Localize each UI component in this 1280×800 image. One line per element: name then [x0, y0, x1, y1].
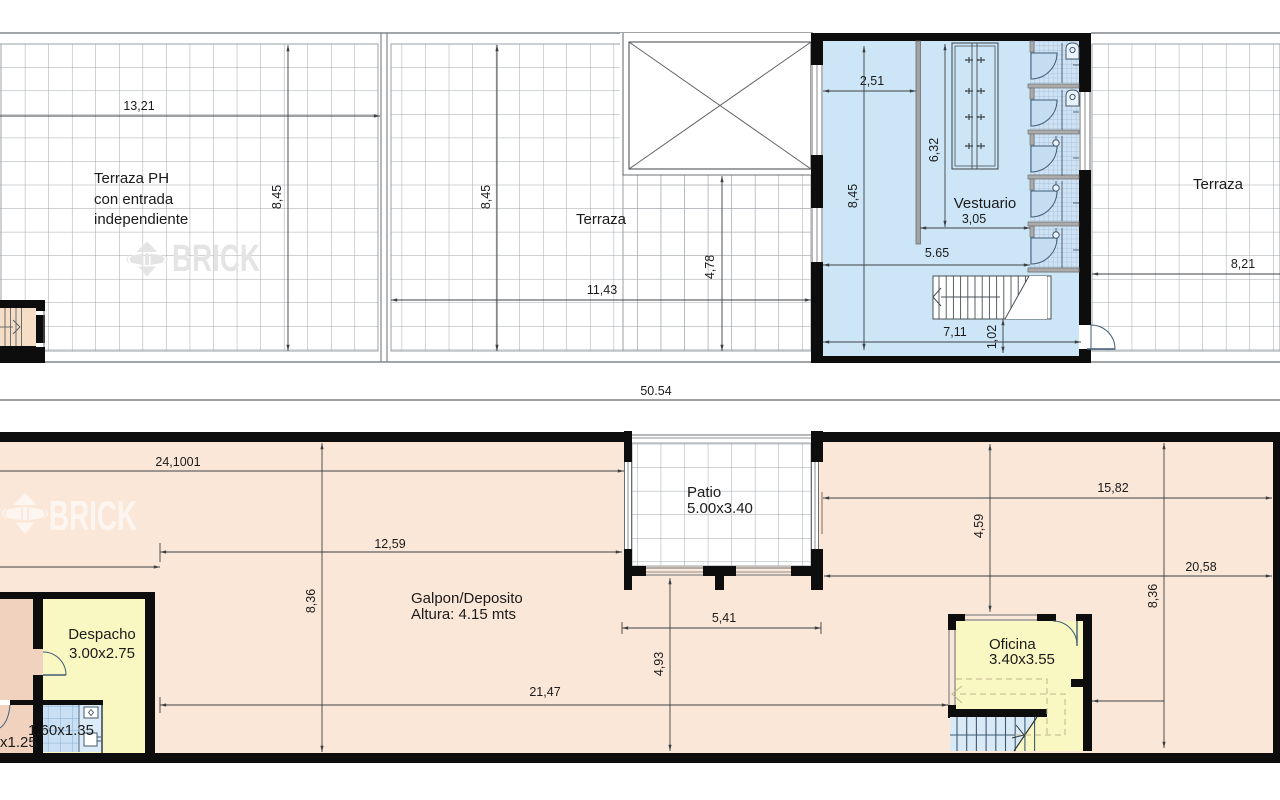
svg-text:11,43: 11,43	[587, 283, 617, 297]
svg-text:1,02: 1,02	[985, 325, 999, 349]
svg-text:3.00x2.75: 3.00x2.75	[69, 645, 135, 662]
svg-text:4,93: 4,93	[652, 652, 666, 676]
svg-text:13,21: 13,21	[123, 99, 154, 113]
svg-text:BRICK: BRICK	[49, 492, 137, 539]
svg-text:5,41: 5,41	[712, 611, 736, 625]
svg-text:1.60x1.35: 1.60x1.35	[28, 722, 94, 739]
svg-text:con entrada: con entrada	[94, 191, 174, 208]
svg-text:5.00x3.40: 5.00x3.40	[687, 500, 753, 517]
svg-text:21,47: 21,47	[529, 685, 560, 699]
svg-text:24,1001: 24,1001	[155, 455, 200, 469]
svg-text:Terraza: Terraza	[576, 211, 627, 228]
svg-text:independiente: independiente	[94, 211, 188, 228]
svg-text:5.65: 5.65	[925, 246, 949, 260]
svg-text:8,45: 8,45	[846, 184, 860, 208]
svg-text:8,45: 8,45	[479, 185, 493, 209]
svg-text:12,59: 12,59	[374, 537, 405, 551]
svg-text:50.54: 50.54	[640, 384, 671, 398]
svg-text:Vestuario: Vestuario	[954, 195, 1017, 212]
svg-text:Altura: 4.15 mts: Altura: 4.15 mts	[411, 606, 516, 623]
svg-text:Galpon/Deposito: Galpon/Deposito	[411, 590, 523, 607]
svg-text:6,32: 6,32	[927, 138, 941, 162]
svg-text:3,05: 3,05	[962, 212, 986, 226]
svg-text:BRICK: BRICK	[172, 238, 260, 280]
svg-text:4,59: 4,59	[972, 514, 986, 538]
svg-text:2,51: 2,51	[860, 74, 884, 88]
svg-text:8,36: 8,36	[1146, 584, 1160, 608]
svg-text:8,36: 8,36	[304, 589, 318, 613]
svg-text:4,78: 4,78	[703, 255, 717, 279]
svg-text:7,11: 7,11	[943, 325, 966, 339]
svg-text:8,21: 8,21	[1231, 257, 1255, 271]
svg-text:Terraza: Terraza	[1193, 176, 1244, 193]
svg-text:Patio: Patio	[687, 484, 721, 501]
svg-text:15,82: 15,82	[1097, 481, 1128, 495]
svg-text:x1.25: x1.25	[0, 734, 37, 751]
svg-text:Terraza PH: Terraza PH	[94, 170, 169, 187]
svg-text:3.40x3.55: 3.40x3.55	[989, 651, 1055, 668]
svg-text:8,45: 8,45	[270, 185, 284, 209]
svg-text:Despacho: Despacho	[68, 626, 136, 643]
svg-text:20,58: 20,58	[1185, 560, 1216, 574]
